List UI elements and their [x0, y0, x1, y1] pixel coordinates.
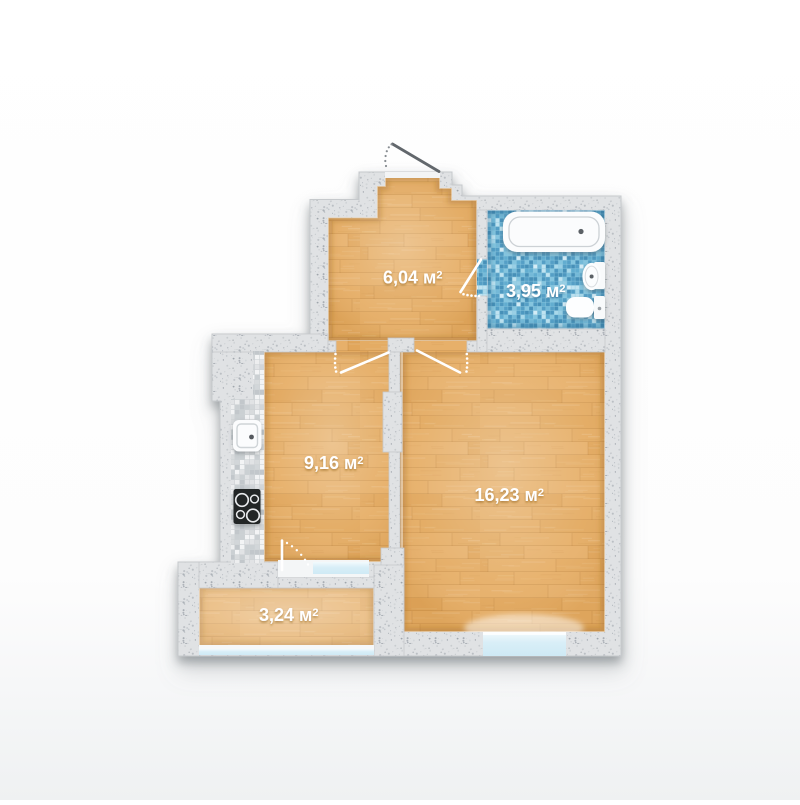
svg-text:6,04 м2: 6,04 м2: [383, 268, 442, 288]
svg-text:9,16 м2: 9,16 м2: [304, 453, 363, 473]
svg-text:3,95 м2: 3,95 м2: [506, 281, 565, 301]
svg-text:3,24 м2: 3,24 м2: [259, 605, 318, 625]
svg-text:16,23 м2: 16,23 м2: [475, 485, 545, 505]
